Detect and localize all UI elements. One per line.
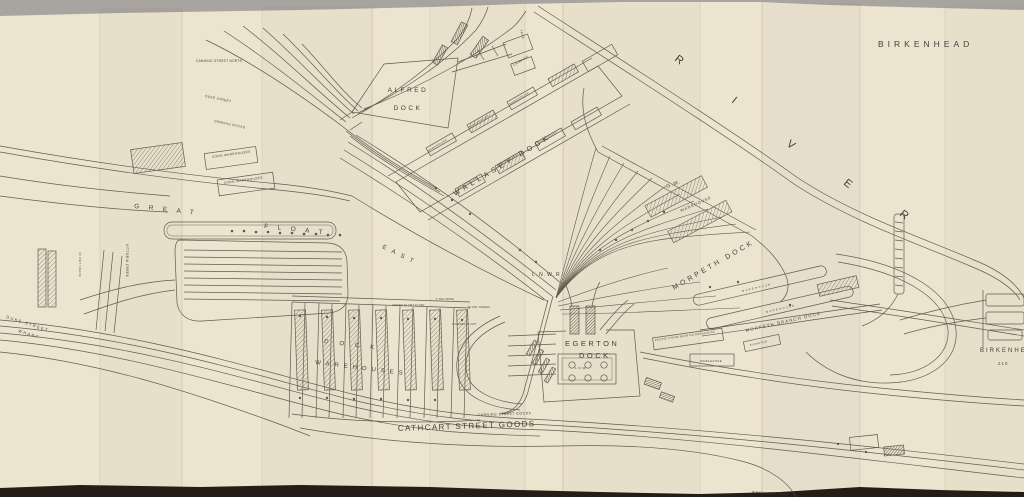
map-label-alfred-1: ALFRED <box>388 87 429 94</box>
map-label-cranes-3: 30 CWT CRANES <box>468 306 490 309</box>
map-label-warehouse-box: WAREHOUSE <box>700 359 722 363</box>
map-label-crane-left: 30 CWT CRANE <box>78 252 82 277</box>
map-label-vittoria-creek: VITTORIA CREEK <box>125 244 129 278</box>
map-label-cranes-4: 4 CRANES 30 CWT <box>452 323 477 326</box>
map-label-cranes-2: 6 TON CRANE <box>436 298 454 301</box>
map-label-alfred-2: DOCK <box>394 105 423 112</box>
map-label-canning-north: CANNING STREET NORTH <box>196 59 243 63</box>
scanned-map-photo: BIRKENHEADRIVERALFREDDOCKWALLASEY DOCKGR… <box>0 0 1024 497</box>
map-label-lnwr: L.N.W.R. <box>532 272 564 278</box>
map-label-egerton-1: EGERTON <box>565 339 619 348</box>
map-label-title: BIRKENHEAD <box>878 39 973 49</box>
map-label-cranes-1: CRANES 30 CWT 15 CWT <box>392 304 425 307</box>
map-label-egerton-2: DOCK <box>579 351 611 360</box>
map-label-birkenhead-cut: BIRKENHEAD <box>980 348 1024 354</box>
birkenhead-dock-plan: BIRKENHEADRIVERALFREDDOCKWALLASEY DOCKGR… <box>0 0 1024 497</box>
map-label-lnw-shed: L.N.W. <box>575 366 587 370</box>
map-label-sheet-210: 210 <box>998 361 1009 366</box>
